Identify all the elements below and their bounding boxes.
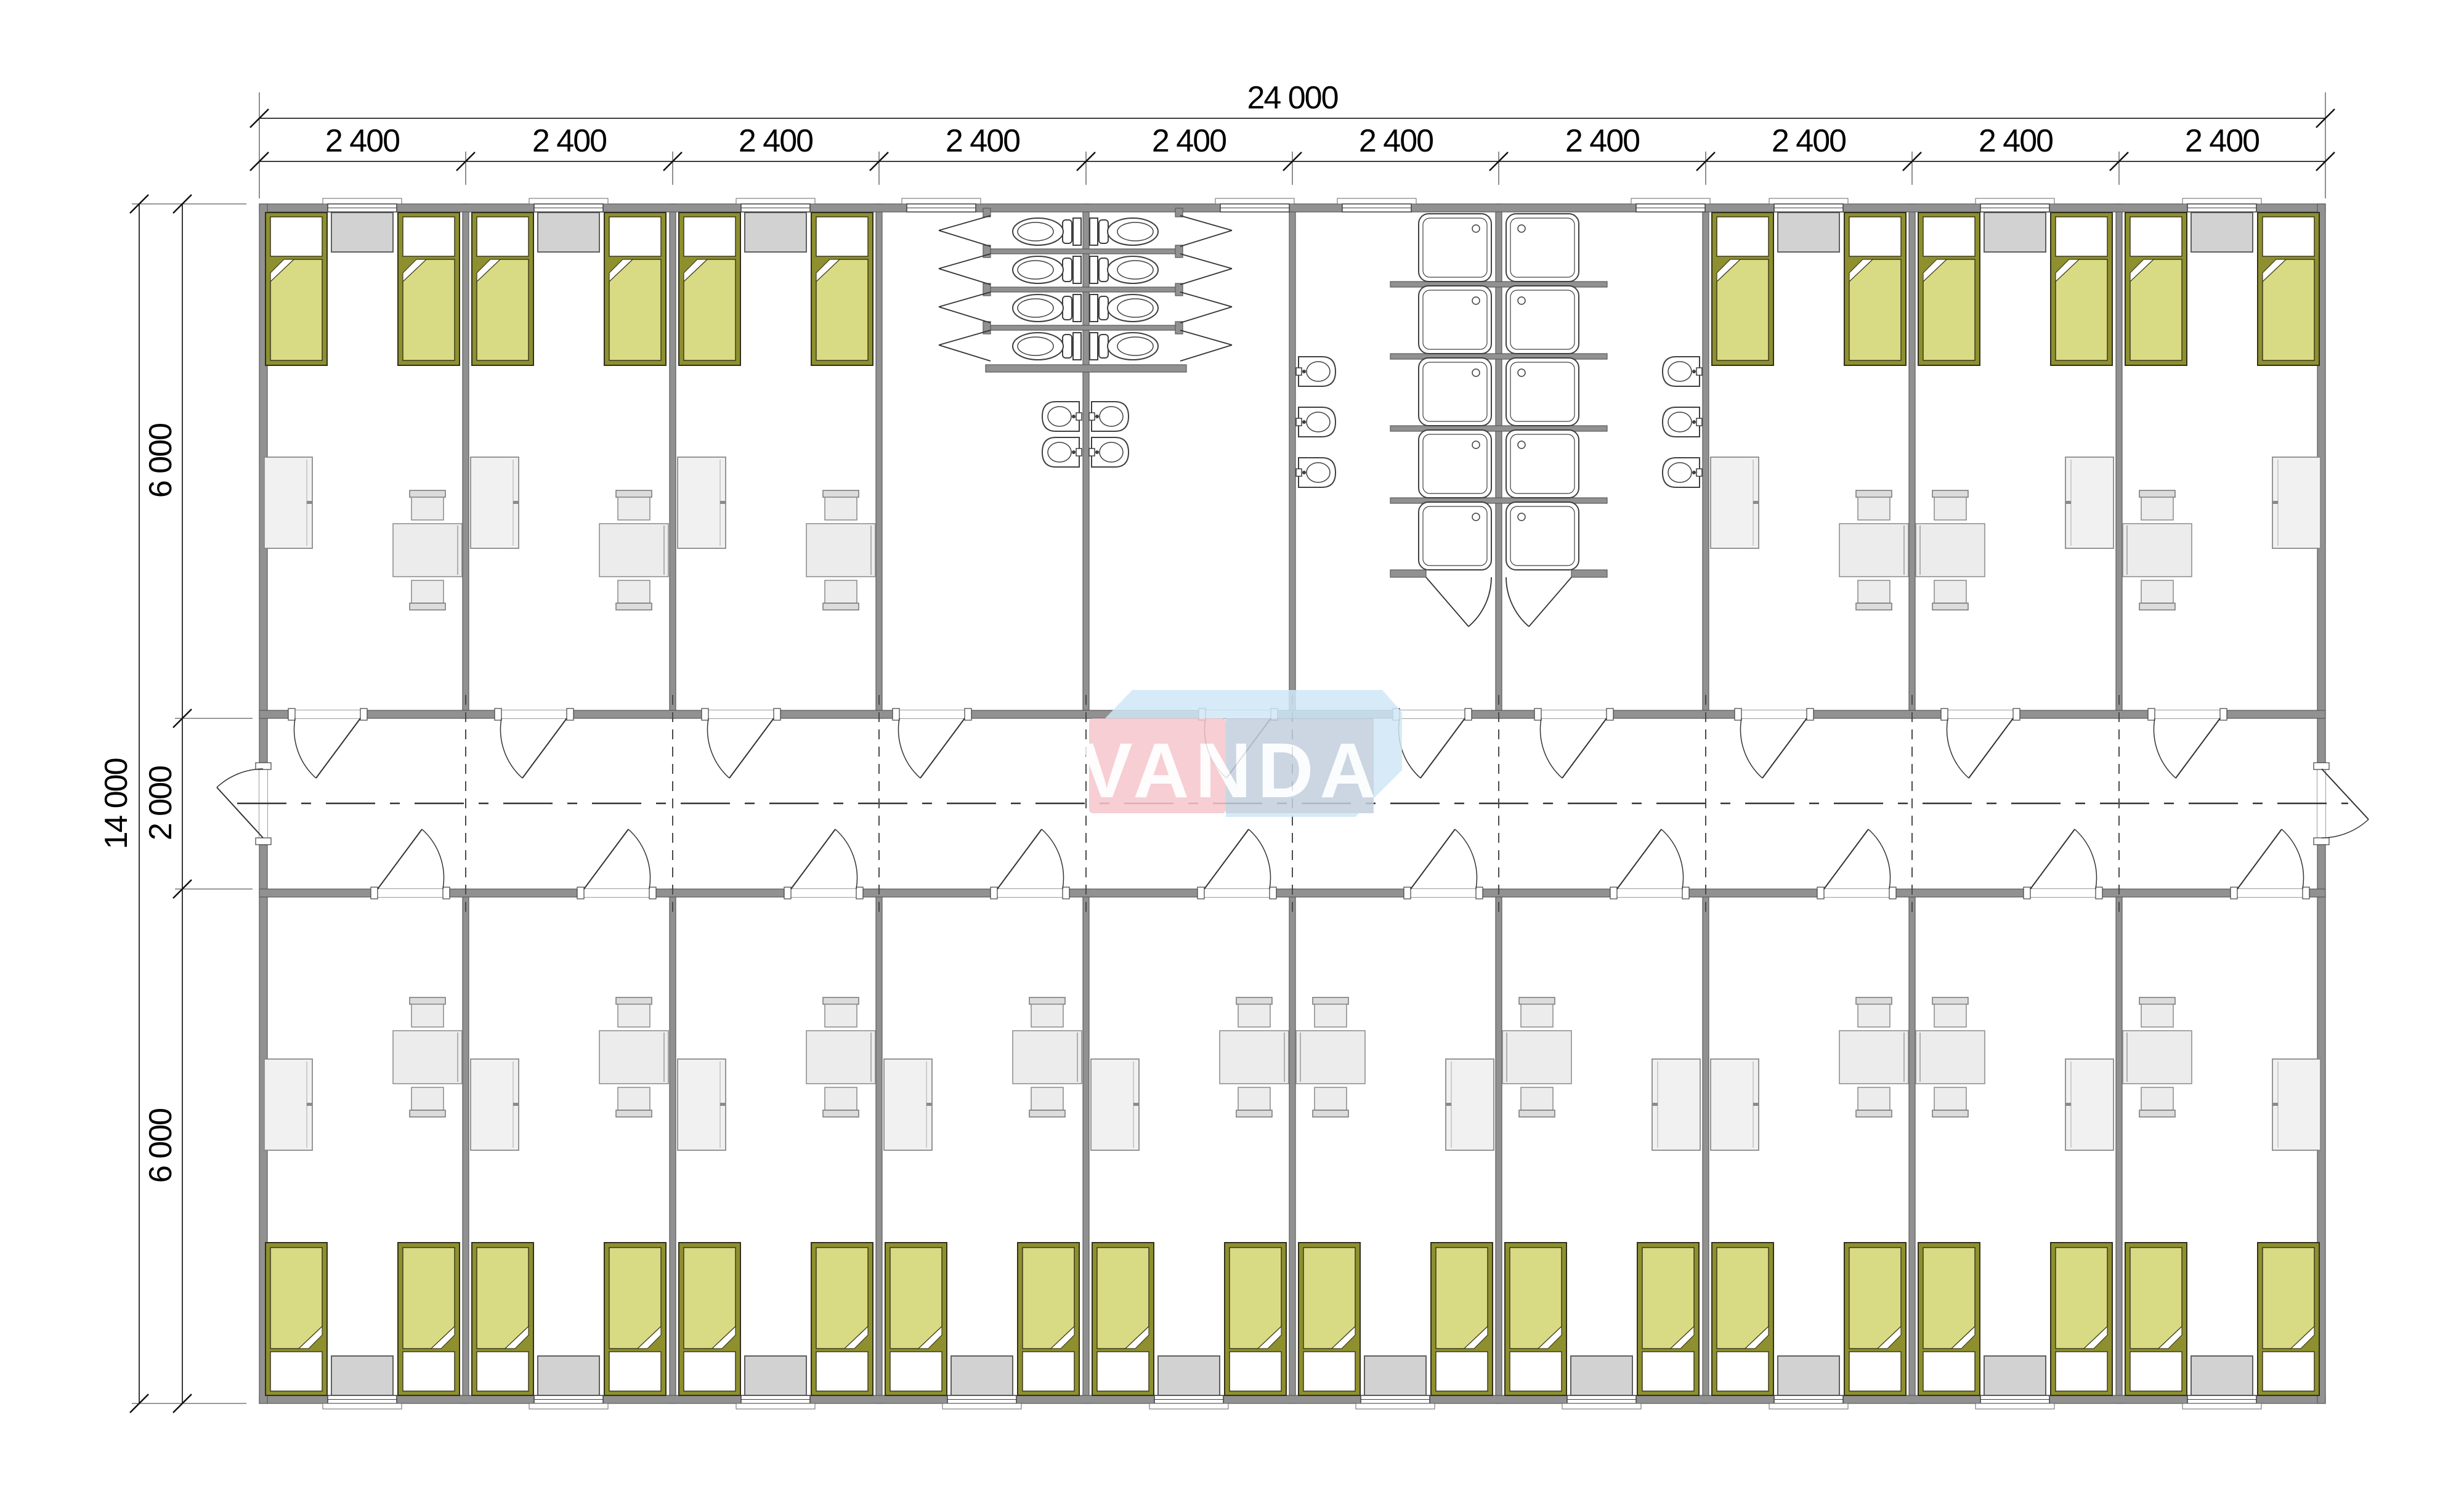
basin <box>1042 437 1082 467</box>
dim-module-6: 2 400 <box>1359 123 1433 159</box>
wc <box>1090 333 1158 360</box>
basin <box>1042 402 1082 431</box>
wc <box>1090 256 1158 283</box>
dim-module-9: 2 400 <box>1979 123 2053 159</box>
dim-module-5: 2 400 <box>1152 123 1226 159</box>
window <box>1631 198 1710 212</box>
wc <box>1090 218 1158 245</box>
bedroom-bottom-1 <box>264 829 462 1409</box>
logo-text: VANDA <box>1081 727 1382 814</box>
window <box>902 198 981 212</box>
basin <box>1296 407 1335 437</box>
basin <box>1663 357 1702 386</box>
basin <box>1296 357 1335 386</box>
shower-tray <box>1419 358 1491 426</box>
bedroom-bottom-10 <box>2123 829 2320 1409</box>
bedroom-bottom-9 <box>1916 829 2113 1409</box>
dim-module-8: 2 400 <box>1772 123 1846 159</box>
wc <box>1013 333 1081 360</box>
bedroom-bottom-2 <box>471 829 668 1409</box>
shower-tray <box>1506 286 1579 354</box>
shower-tray <box>1419 286 1491 354</box>
bedroom-top-1 <box>264 198 462 778</box>
basin <box>1663 458 1702 487</box>
bedroom-top-2 <box>471 198 668 778</box>
dim-module-2: 2 400 <box>532 123 606 159</box>
shower-tray <box>1506 214 1579 282</box>
bedroom-bottom-6 <box>1296 829 1494 1409</box>
dim-module-1: 2 400 <box>325 123 399 159</box>
shower-tray <box>1419 502 1491 570</box>
door-swing <box>1393 708 1472 778</box>
bedroom-top-8 <box>1711 198 1908 778</box>
bedroom-top-3 <box>678 198 875 778</box>
floor-plan: 24 000 2 400 2 400 2 400 2 400 2 400 2 4… <box>0 0 2464 1502</box>
bedroom-top-9 <box>1916 198 2113 778</box>
dim-depth-top: 6 000 <box>143 424 179 498</box>
basin <box>1089 437 1129 467</box>
shower-tray <box>1419 430 1491 498</box>
shower-tray <box>1506 430 1579 498</box>
dim-module-10: 2 400 <box>2185 123 2259 159</box>
shower-tray <box>1506 358 1579 426</box>
dim-total-width: 24 000 <box>1247 80 1337 116</box>
dim-depth-bottom: 6 000 <box>143 1109 179 1183</box>
dim-depth-corridor: 2 000 <box>143 766 179 840</box>
wc <box>1090 294 1158 322</box>
door-swing <box>1534 708 1613 778</box>
bedroom-bottom-8 <box>1711 829 1908 1409</box>
dim-module-3: 2 400 <box>739 123 813 159</box>
shower-tray <box>1506 502 1579 570</box>
basin <box>1663 407 1702 437</box>
bedroom-top-10 <box>2123 198 2320 778</box>
window <box>1215 198 1294 212</box>
wc <box>1013 218 1081 245</box>
door-swing <box>893 708 971 778</box>
dim-module-7: 2 400 <box>1565 123 1639 159</box>
dim-module-4: 2 400 <box>946 123 1019 159</box>
bedroom-bottom-3 <box>678 829 875 1409</box>
shower-tray <box>1419 214 1491 282</box>
bedroom-bottom-5 <box>1091 829 1289 1409</box>
dim-total-depth: 14 000 <box>99 758 134 849</box>
basin <box>1089 402 1129 431</box>
basin <box>1296 458 1335 487</box>
wc <box>1013 294 1081 322</box>
window <box>1337 198 1416 212</box>
bedroom-bottom-7 <box>1502 829 1700 1409</box>
wc <box>1013 256 1081 283</box>
bedroom-bottom-4 <box>884 829 1082 1409</box>
vanda-logo: VANDA <box>1081 690 1402 817</box>
